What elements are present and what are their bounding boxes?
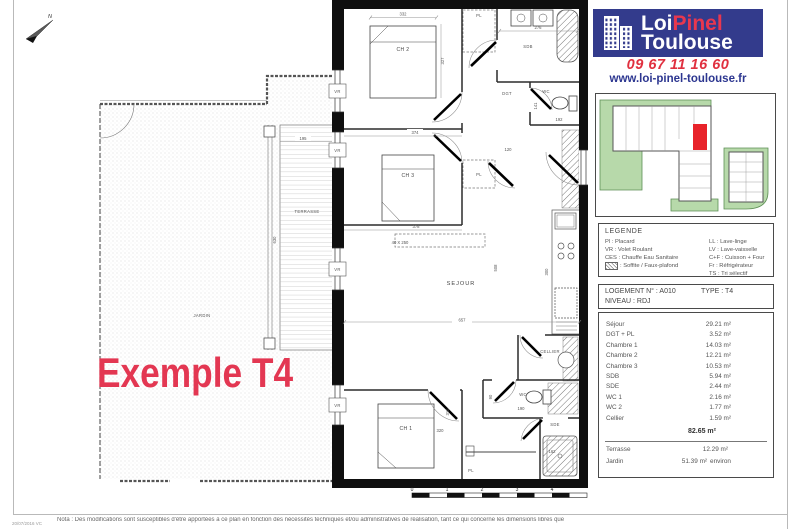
svg-text:2: 2: [481, 487, 484, 493]
logo-line2: Toulouse: [641, 33, 733, 52]
vr-label: VR: [334, 403, 340, 408]
pl-label-mid: PL: [476, 172, 482, 177]
dgt-label: DGT: [502, 91, 512, 96]
unit-number: LOGEMENT N° : A010: [605, 288, 701, 295]
area-row: SDE2.44 m²: [599, 382, 773, 392]
ch3-label: CH 3: [402, 173, 415, 179]
legend-item-soffite: : Soffite / Faux-plafond: [605, 262, 709, 270]
jardin-label: JARDIN: [194, 313, 211, 318]
svg-text:508: 508: [493, 264, 498, 272]
svg-text:162: 162: [549, 449, 557, 454]
svg-text:192: 192: [556, 117, 564, 122]
kitchen-block: [552, 210, 580, 334]
legend-item: VR : Volet Roulant: [605, 246, 709, 254]
legend-item: LV : Lave-vaisselle: [709, 246, 767, 254]
dim-630: 630: [272, 236, 277, 244]
wc1-label: WC: [542, 89, 550, 94]
area-row-terrasse: Terrasse12.29 m²: [599, 444, 773, 456]
svg-text:1: 1: [446, 487, 449, 493]
north-label: N: [48, 14, 52, 20]
example-type-caption: Exemple T4: [97, 349, 293, 397]
legend-item: CES : Chauffe Eau Sanitaire: [605, 254, 709, 262]
unit-info: LOGEMENT N° : A010 TYPE : T4 NIVEAU : RD…: [598, 284, 774, 309]
svg-text:300: 300: [544, 268, 549, 276]
area-row: Chambre 114.03 m²: [599, 341, 773, 351]
terrasse-label: TERRASSE: [295, 209, 320, 214]
website-link[interactable]: www.loi-pinel-toulouse.fr: [591, 73, 765, 85]
vr-label: VR: [334, 267, 340, 272]
building-icon: [598, 13, 638, 53]
svg-text:332: 332: [400, 12, 408, 17]
water-heater: [558, 352, 574, 368]
svg-text:4: 4: [551, 487, 554, 493]
north-arrow-icon: N: [26, 14, 53, 43]
sheet-border-right: [787, 0, 788, 529]
svg-text:90: 90: [488, 394, 493, 399]
vr-label: VR: [334, 148, 340, 153]
pl-label-bottom: PL: [468, 468, 474, 473]
legend-item: Pl : Placard: [605, 238, 709, 246]
total-area: 82.65 m²: [599, 426, 773, 438]
scale-bar: 0 1 2 3 4: [411, 487, 587, 498]
svg-text:3: 3: [516, 487, 519, 493]
legend-title: LEGENDE: [605, 228, 767, 235]
svg-text:310: 310: [445, 408, 450, 416]
area-row: DGT + PL3.52 m²: [599, 330, 773, 340]
svg-text:190: 190: [518, 406, 526, 411]
area-row: Chambre 212.21 m²: [599, 351, 773, 361]
svg-text:0: 0: [411, 487, 414, 493]
dressing-size-label: 40 X 250: [392, 240, 409, 245]
site-plan-minimap: [595, 93, 776, 217]
divider: [605, 441, 767, 442]
wc2-label: WC: [519, 392, 527, 397]
area-row: WC 21.77 m²: [599, 403, 773, 413]
footer-note: Nota : Des modifications sont susceptibl…: [57, 517, 799, 523]
dim-195: 195: [300, 136, 308, 141]
hatch-swatch-icon: [605, 262, 618, 270]
ch2-label: CH 2: [397, 47, 410, 53]
floor-plan: N JARDIN 195 630 TERRASSE: [0, 0, 592, 529]
legend-item: TS : Tri sélectif: [709, 270, 767, 278]
areas-table: Séjour29.21 m² DGT + PL3.52 m² Chambre 1…: [598, 312, 774, 478]
legend-item: Fr : Réfrigérateur: [709, 262, 767, 270]
legend-item: C+F : Cuisson + Four: [709, 254, 767, 262]
bed-ch2: [370, 26, 436, 98]
svg-text:657: 657: [459, 318, 467, 323]
phone-number: 09 67 11 16 60: [593, 57, 763, 73]
area-row: Chambre 310.53 m²: [599, 362, 773, 372]
plan-reference: 20/07/2016 VC: [12, 521, 42, 526]
area-row: Cellier1.59 m²: [599, 414, 773, 424]
toilet-wc2: [526, 390, 551, 404]
sdb-label: SDB: [523, 44, 533, 49]
unit-type: TYPE : T4: [701, 288, 733, 295]
area-row: WC 12.16 m²: [599, 393, 773, 403]
svg-text:378: 378: [413, 224, 421, 229]
area-row: Séjour29.21 m²: [599, 320, 773, 330]
vr-label: VR: [334, 89, 340, 94]
highlighted-unit: [693, 124, 707, 150]
sde-label: SDE: [550, 422, 560, 427]
legend-item: LL : Lave-linge: [709, 238, 767, 246]
svg-text:320: 320: [437, 428, 445, 433]
svg-text:276: 276: [535, 25, 543, 30]
bed-ch3: [382, 155, 434, 221]
brand-logo: LoiPinel Toulouse: [593, 9, 763, 57]
area-row-jardin: Jardin51.39 m²environ: [599, 456, 773, 468]
cellier-label: CELLIER: [540, 349, 560, 354]
unit-level: NIVEAU : RDJ: [605, 298, 767, 305]
svg-text:374: 374: [412, 130, 420, 135]
area-row: SDB5.94 m²: [599, 372, 773, 382]
svg-text:327: 327: [440, 57, 445, 65]
bed-ch1: [378, 404, 434, 468]
svg-text:120: 120: [505, 147, 513, 152]
ch1-label: CH 1: [400, 426, 413, 432]
sejour-label: SEJOUR: [447, 281, 476, 287]
pl-label-top: PL: [476, 13, 482, 18]
svg-text:141: 141: [533, 102, 538, 110]
legend: LEGENDE Pl : Placard VR : Volet Roulant …: [598, 223, 774, 277]
